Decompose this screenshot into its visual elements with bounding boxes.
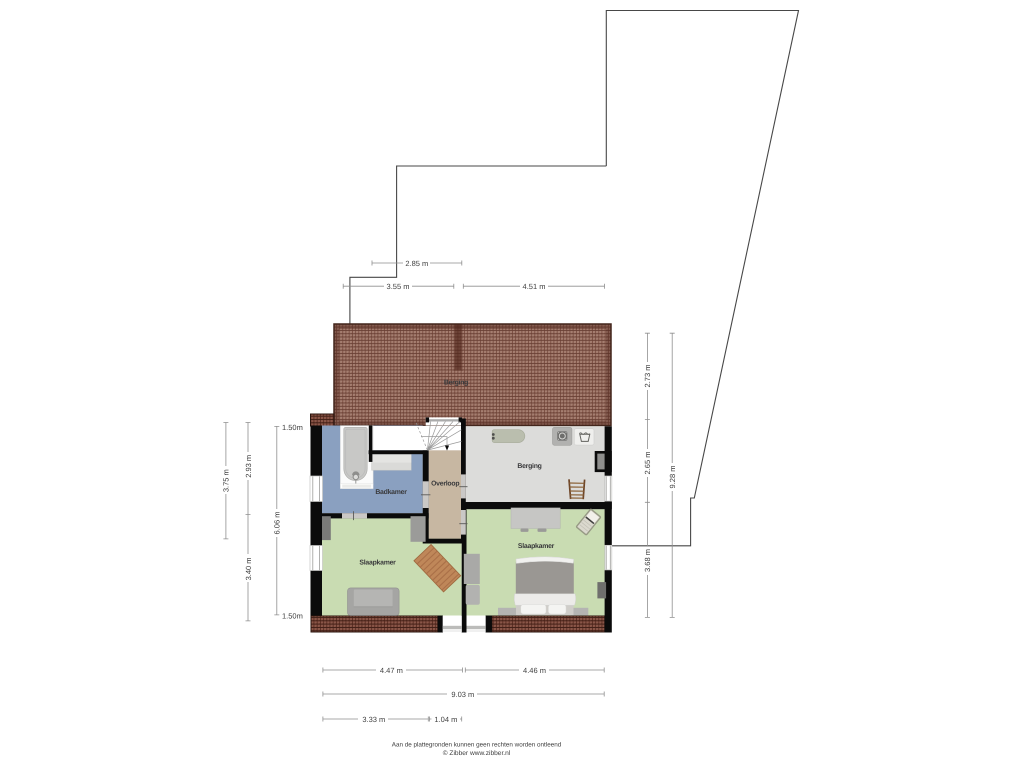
svg-text:3.33 m: 3.33 m bbox=[362, 715, 385, 724]
svg-text:9.03 m: 9.03 m bbox=[451, 690, 474, 699]
svg-text:Berging: Berging bbox=[444, 380, 468, 387]
svg-text:3.40 m: 3.40 m bbox=[244, 557, 253, 580]
svg-text:4.46 m: 4.46 m bbox=[523, 666, 546, 675]
svg-text:6.06 m: 6.06 m bbox=[273, 512, 282, 535]
svg-text:Slaapkamer: Slaapkamer bbox=[359, 559, 396, 566]
svg-text:1.50m: 1.50m bbox=[282, 611, 303, 620]
svg-text:4.51 m: 4.51 m bbox=[523, 282, 546, 291]
svg-text:Overloop: Overloop bbox=[431, 480, 459, 487]
svg-text:4.47 m: 4.47 m bbox=[380, 666, 403, 675]
svg-text:Aan de plattegronden kunnen ge: Aan de plattegronden kunnen geen rechten… bbox=[392, 742, 562, 749]
svg-text:© Zibber www.zibber.nl: © Zibber www.zibber.nl bbox=[443, 750, 511, 757]
svg-text:3.68 m: 3.68 m bbox=[643, 549, 652, 572]
svg-text:2.93 m: 2.93 m bbox=[244, 455, 253, 478]
svg-text:2.73 m: 2.73 m bbox=[643, 365, 652, 388]
svg-text:Badkamer: Badkamer bbox=[375, 489, 407, 496]
svg-text:2.65 m: 2.65 m bbox=[643, 452, 652, 475]
svg-text:9.28 m: 9.28 m bbox=[668, 466, 677, 489]
svg-text:3.75 m: 3.75 m bbox=[222, 469, 231, 492]
svg-text:2.85 m: 2.85 m bbox=[405, 259, 428, 268]
svg-text:Berging: Berging bbox=[517, 463, 541, 470]
svg-text:1.04 m: 1.04 m bbox=[434, 715, 457, 724]
svg-text:Slaapkamer: Slaapkamer bbox=[518, 543, 555, 550]
svg-text:3.55 m: 3.55 m bbox=[387, 282, 410, 291]
svg-text:1.50m: 1.50m bbox=[282, 423, 303, 432]
